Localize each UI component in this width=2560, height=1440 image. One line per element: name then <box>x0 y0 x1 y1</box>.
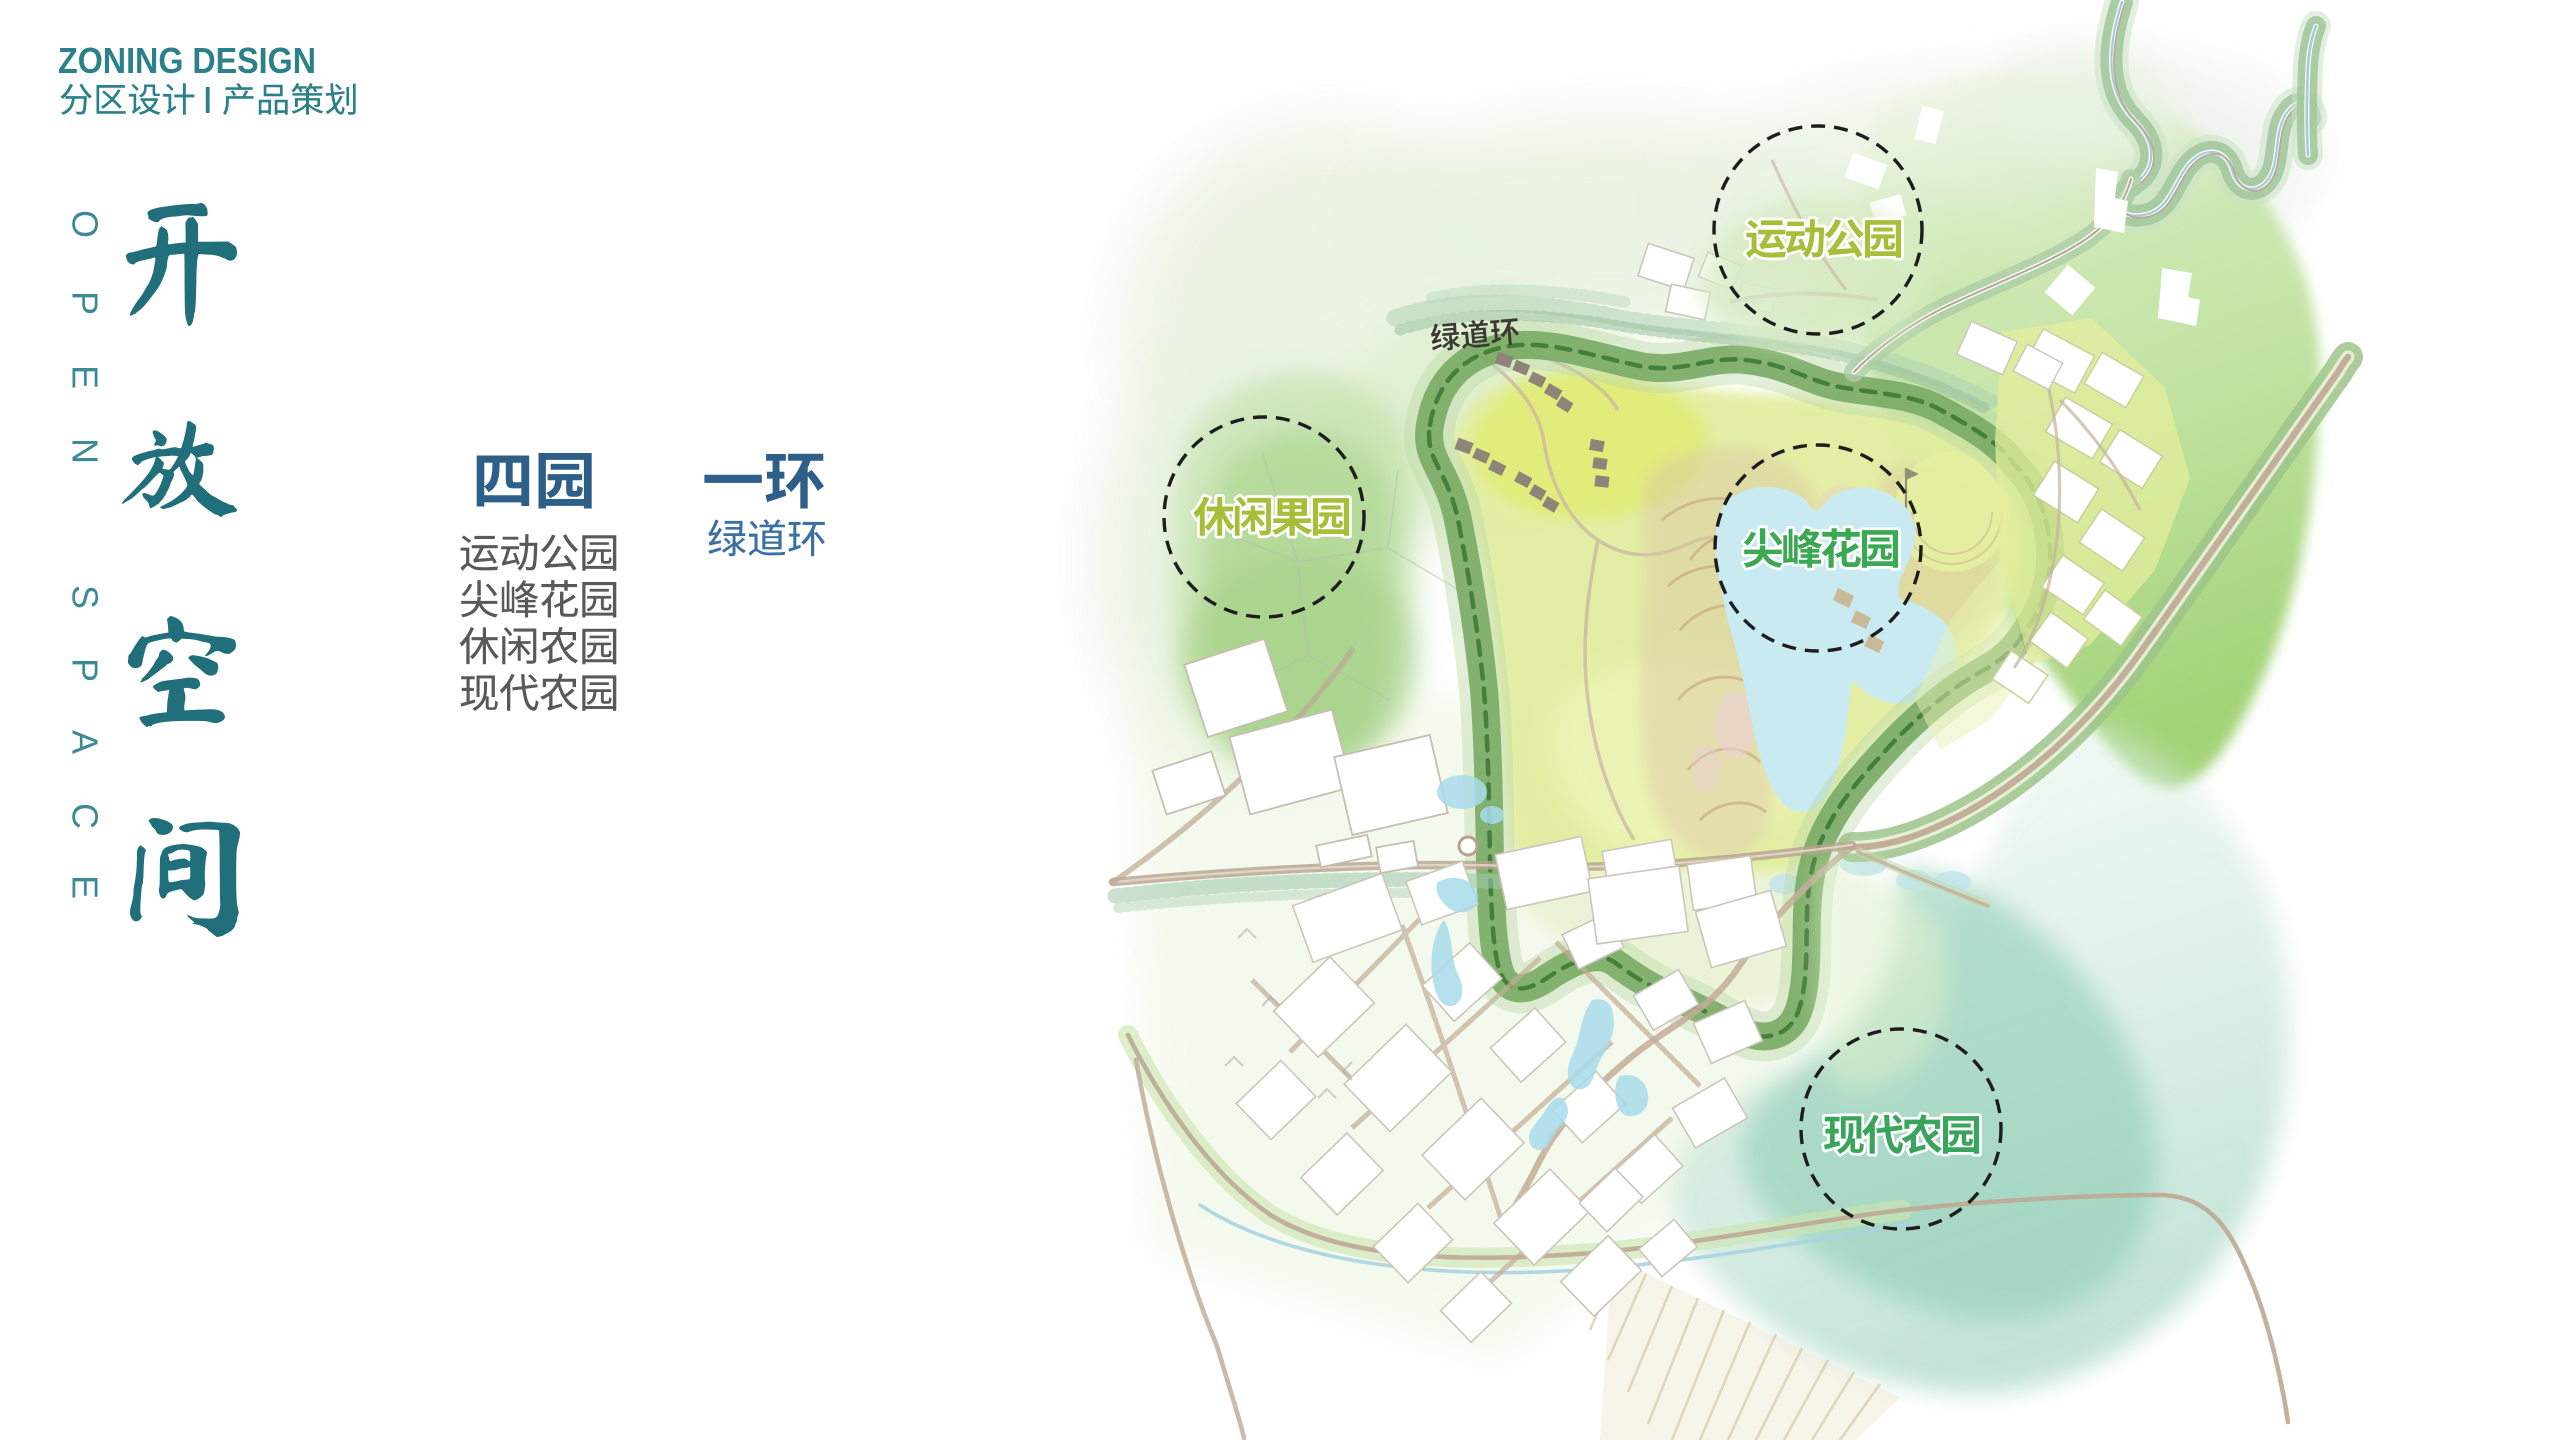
svg-text:E: E <box>65 875 106 899</box>
svg-text:N: N <box>65 438 106 464</box>
svg-text:P: P <box>65 291 106 315</box>
svg-text:C: C <box>65 803 106 829</box>
svg-text:S: S <box>65 585 106 609</box>
svg-text:ZONING DESIGN: ZONING DESIGN <box>58 40 316 81</box>
svg-text:E: E <box>65 365 106 389</box>
svg-text:P: P <box>65 658 106 682</box>
svg-text:A: A <box>65 730 106 754</box>
svg-text:O: O <box>65 210 106 238</box>
